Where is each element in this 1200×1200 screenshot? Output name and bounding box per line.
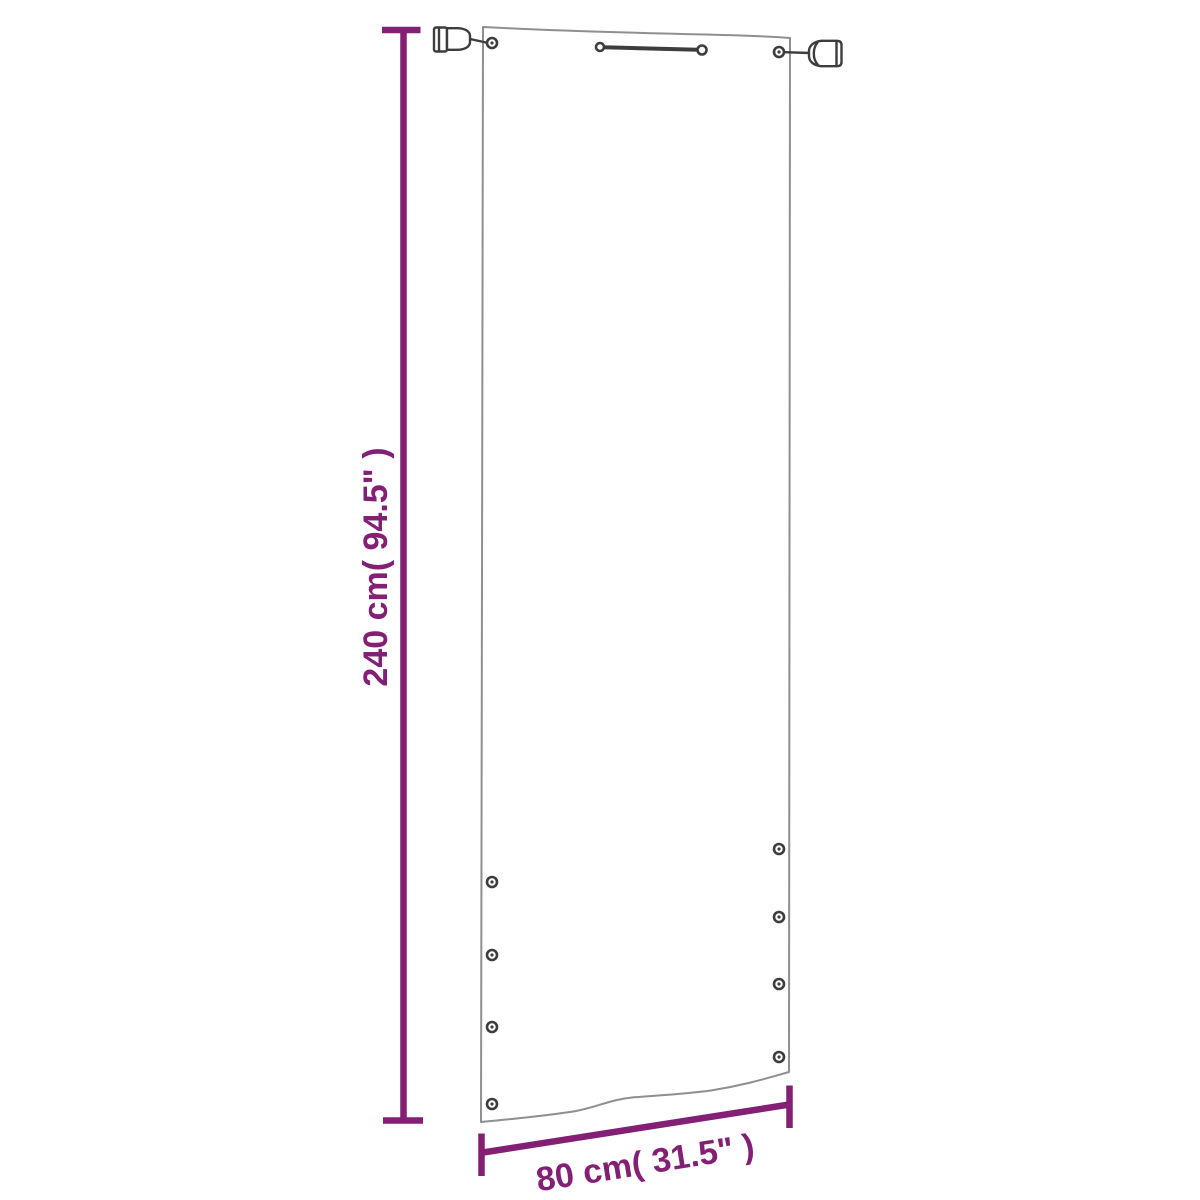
grommet-top-right — [774, 47, 784, 57]
right-bracket-connector — [785, 52, 810, 53]
tie-cord-end-left — [596, 43, 604, 51]
grommet-right-2 — [774, 912, 784, 922]
left-mounting-bracket — [434, 28, 486, 52]
right-mounting-bracket — [785, 41, 842, 66]
screen-panel — [481, 27, 790, 1122]
grommet-right-3 — [774, 979, 784, 989]
height-dimension-label: 240 cm( 94.5" ) — [357, 447, 395, 686]
grommet-right-1 — [774, 844, 784, 854]
screen-panel-outline — [481, 27, 790, 1122]
grommet-left-1 — [487, 877, 497, 887]
product-dimension-diagram: 240 cm( 94.5" ) 80 cm( 31.5" ) — [0, 0, 1200, 1200]
grommet-left-3 — [487, 1022, 497, 1032]
grommet-left-2 — [487, 950, 497, 960]
grommet-top-left — [487, 38, 497, 48]
grommet-right-4 — [774, 1052, 784, 1062]
tie-cord-end-right — [698, 46, 707, 55]
height-dimension: 240 cm( 94.5" ) — [357, 30, 423, 1121]
left-bracket-body — [447, 28, 470, 50]
left-bracket-plate — [434, 28, 447, 52]
balcony-screen-diagram: 240 cm( 94.5" ) 80 cm( 31.5" ) — [0, 0, 1200, 1200]
tie-cord-line — [604, 47, 698, 49]
grommet-left-4 — [487, 1099, 497, 1109]
